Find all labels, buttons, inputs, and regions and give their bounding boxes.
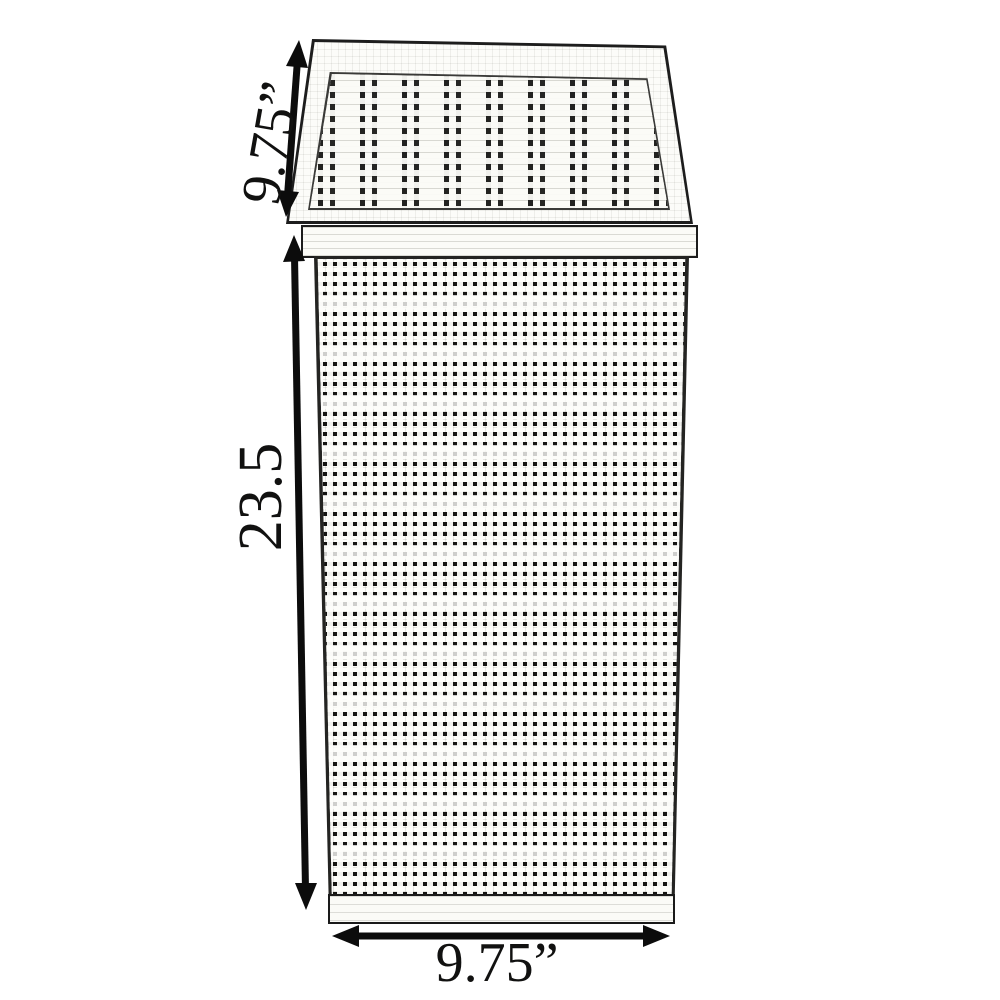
basket-rim-band — [301, 225, 698, 258]
basket-body — [314, 256, 689, 897]
basket-body-weave — [317, 259, 686, 894]
dimension-label-height: 23.5 — [228, 397, 294, 597]
product-dimension-diagram: 9.75” 23.5 9.75” — [0, 0, 1000, 1000]
dimension-label-bottom-width: 9.75” — [397, 930, 597, 996]
basket-base-band — [328, 894, 675, 924]
basket-top-mat-edge — [308, 72, 670, 210]
basket-top-woven-mat — [310, 74, 668, 208]
